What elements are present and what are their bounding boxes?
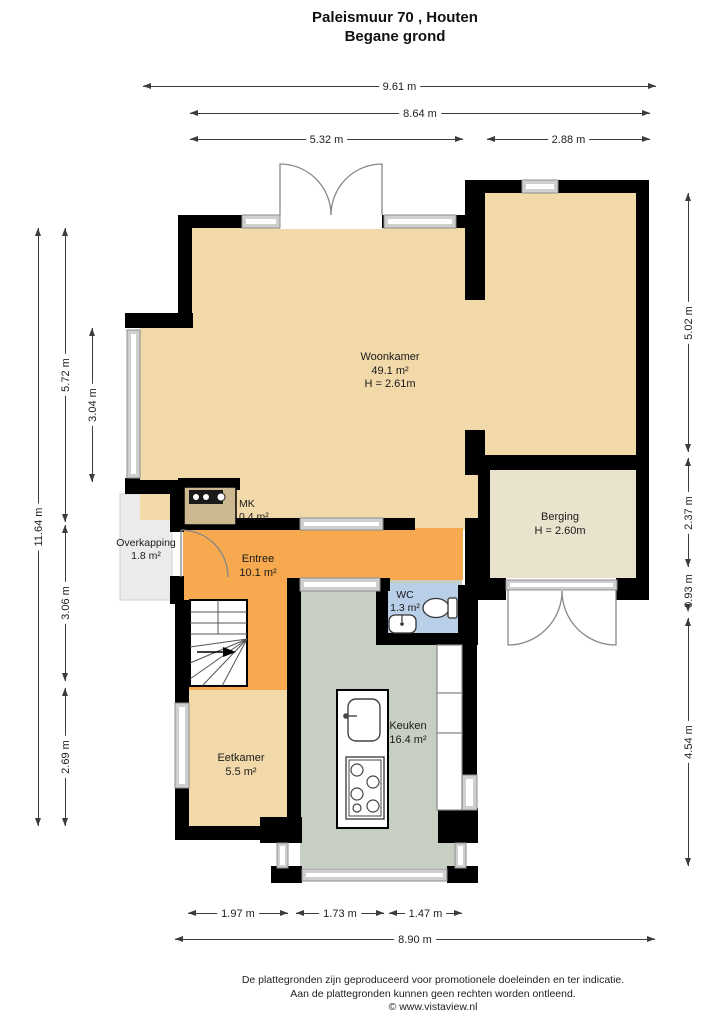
room-name: Keuken: [389, 720, 426, 734]
wall-segment: [383, 518, 415, 530]
room-area: 0.4 m²: [239, 511, 269, 524]
room-label-mk: MK 0.4 m²: [239, 498, 269, 523]
french-door-right: [331, 164, 382, 215]
wall-segment: [271, 866, 302, 883]
opening-french-doors: [280, 214, 382, 229]
window-top-mid: [384, 215, 456, 228]
room-area: 1.8 m²: [116, 550, 176, 563]
floor-woonkamer-c: [465, 193, 636, 455]
toilet-tank: [448, 598, 457, 618]
wall-segment: [260, 817, 302, 843]
dim-right-upper: 5.02 m: [688, 193, 689, 452]
dim-right-mid: 2.37 m: [688, 458, 689, 567]
room-label-woonkamer: Woonkamer 49.1 m² H = 2.61m: [360, 351, 419, 392]
wall-segment: [465, 180, 485, 300]
window-internal-woonkamer: [300, 518, 383, 530]
room-label-keuken: Keuken 16.4 m²: [389, 720, 426, 747]
window-eetkamer: [175, 703, 189, 788]
kitchen-island: [337, 690, 388, 828]
sill-berging-doors: [506, 580, 617, 590]
dim-right-lower: 4.54 m: [688, 618, 689, 866]
island-stove: [346, 757, 384, 819]
counter-segment: [437, 645, 462, 693]
dim-top-total: 9.61 m: [143, 86, 656, 87]
dim-top-inner: 8.64 m: [190, 113, 650, 114]
room-label-eetkamer: Eetkamer 5.5 m²: [217, 752, 264, 779]
window-bay-bottom: [302, 869, 447, 881]
room-label-wc: WC 1.3 m²: [390, 589, 420, 614]
window-bay-left: [277, 843, 288, 868]
room-name: Berging: [534, 511, 585, 525]
wall-segment: [178, 215, 192, 328]
dim-left-total: 11.64 m: [38, 228, 39, 826]
dim-left-upper: 5.72 m: [65, 228, 66, 522]
room-ceiling: H = 2.60m: [534, 525, 585, 539]
room-name: Entree: [239, 553, 276, 567]
room-name: WC: [390, 589, 420, 602]
window-left-woonkamer: [127, 330, 140, 478]
footer-disclaimer: De plattegronden zijn geproduceerd voor …: [242, 974, 624, 1015]
counter-segment: [437, 733, 462, 810]
island-sink: [348, 699, 380, 741]
kitchen-counters: [437, 645, 462, 810]
room-area: 5.5 m²: [217, 766, 264, 780]
dim-bottom-total: 8.90 m: [175, 939, 655, 940]
room-name: Eetkamer: [217, 752, 264, 766]
room-area: 49.1 m²: [360, 365, 419, 379]
wall-segment: [438, 808, 478, 843]
footer-credit: © www.vistaview.nl: [242, 1001, 624, 1015]
wall-segment: [287, 578, 301, 840]
wall-segment: [175, 600, 189, 705]
room-label-entree: Entree 10.1 m²: [239, 553, 276, 580]
wall-segment: [376, 633, 466, 645]
room-label-overkapping: Overkapping 1.8 m²: [116, 537, 176, 562]
wall-segment: [478, 468, 490, 580]
floorplan-page: Paleismuur 70 , Houten Begane grond: [0, 0, 724, 1024]
window-keuken-right: [462, 775, 477, 810]
wall-segment: [636, 180, 649, 592]
room-ceiling: H = 2.61m: [360, 378, 419, 392]
dim-bottom-left: 1.97 m: [188, 913, 288, 914]
dim-left-window: 3.04 m: [92, 328, 93, 482]
meter-dial: [203, 494, 209, 500]
wc-sink-drain: [400, 622, 404, 626]
floor-entree-band: [183, 528, 463, 580]
staircase: [190, 600, 247, 686]
footer-line-1: De plattegronden zijn geproduceerd voor …: [242, 974, 624, 988]
window-top-right: [522, 180, 558, 193]
wall-segment: [170, 576, 184, 604]
dim-bottom-right: 1.47 m: [389, 913, 462, 914]
counter-segment: [437, 693, 462, 733]
dim-bottom-mid: 1.73 m: [296, 913, 384, 914]
meter-dial: [193, 494, 199, 500]
window-internal-keuken: [300, 578, 380, 591]
room-name: MK: [239, 498, 269, 511]
room-area: 16.4 m²: [389, 734, 426, 748]
wall-segment: [458, 585, 478, 645]
french-door-left: [280, 164, 331, 215]
wall-segment: [170, 490, 184, 532]
window-top-left: [242, 215, 280, 228]
floorplan-drawing: [0, 0, 724, 1024]
room-area: 10.1 m²: [239, 567, 276, 581]
wall-segment: [616, 578, 649, 600]
room-name: Overkapping: [116, 537, 176, 550]
room-label-berging: Berging H = 2.60m: [534, 511, 585, 538]
dim-top-left: 5.32 m: [190, 139, 463, 140]
dim-left-mid: 3.06 m: [65, 525, 66, 681]
dim-top-right: 2.88 m: [487, 139, 650, 140]
meter-dial: [217, 493, 225, 501]
meter-cupboard: [184, 487, 236, 525]
wall-segment: [478, 455, 649, 470]
dim-left-lower: 2.69 m: [65, 688, 66, 826]
toilet-bowl: [423, 599, 449, 618]
dim-right-small: 0.93 m: [688, 570, 689, 612]
footer-line-2: Aan de plattegronden kunnen geen rechten…: [242, 988, 624, 1002]
wall-segment: [447, 866, 478, 883]
wall-segment: [478, 578, 506, 600]
wall-segment: [125, 313, 193, 328]
room-area: 1.3 m²: [390, 602, 420, 615]
window-bay-right: [455, 843, 466, 868]
room-name: Woonkamer: [360, 351, 419, 365]
wall-segment: [462, 643, 477, 778]
